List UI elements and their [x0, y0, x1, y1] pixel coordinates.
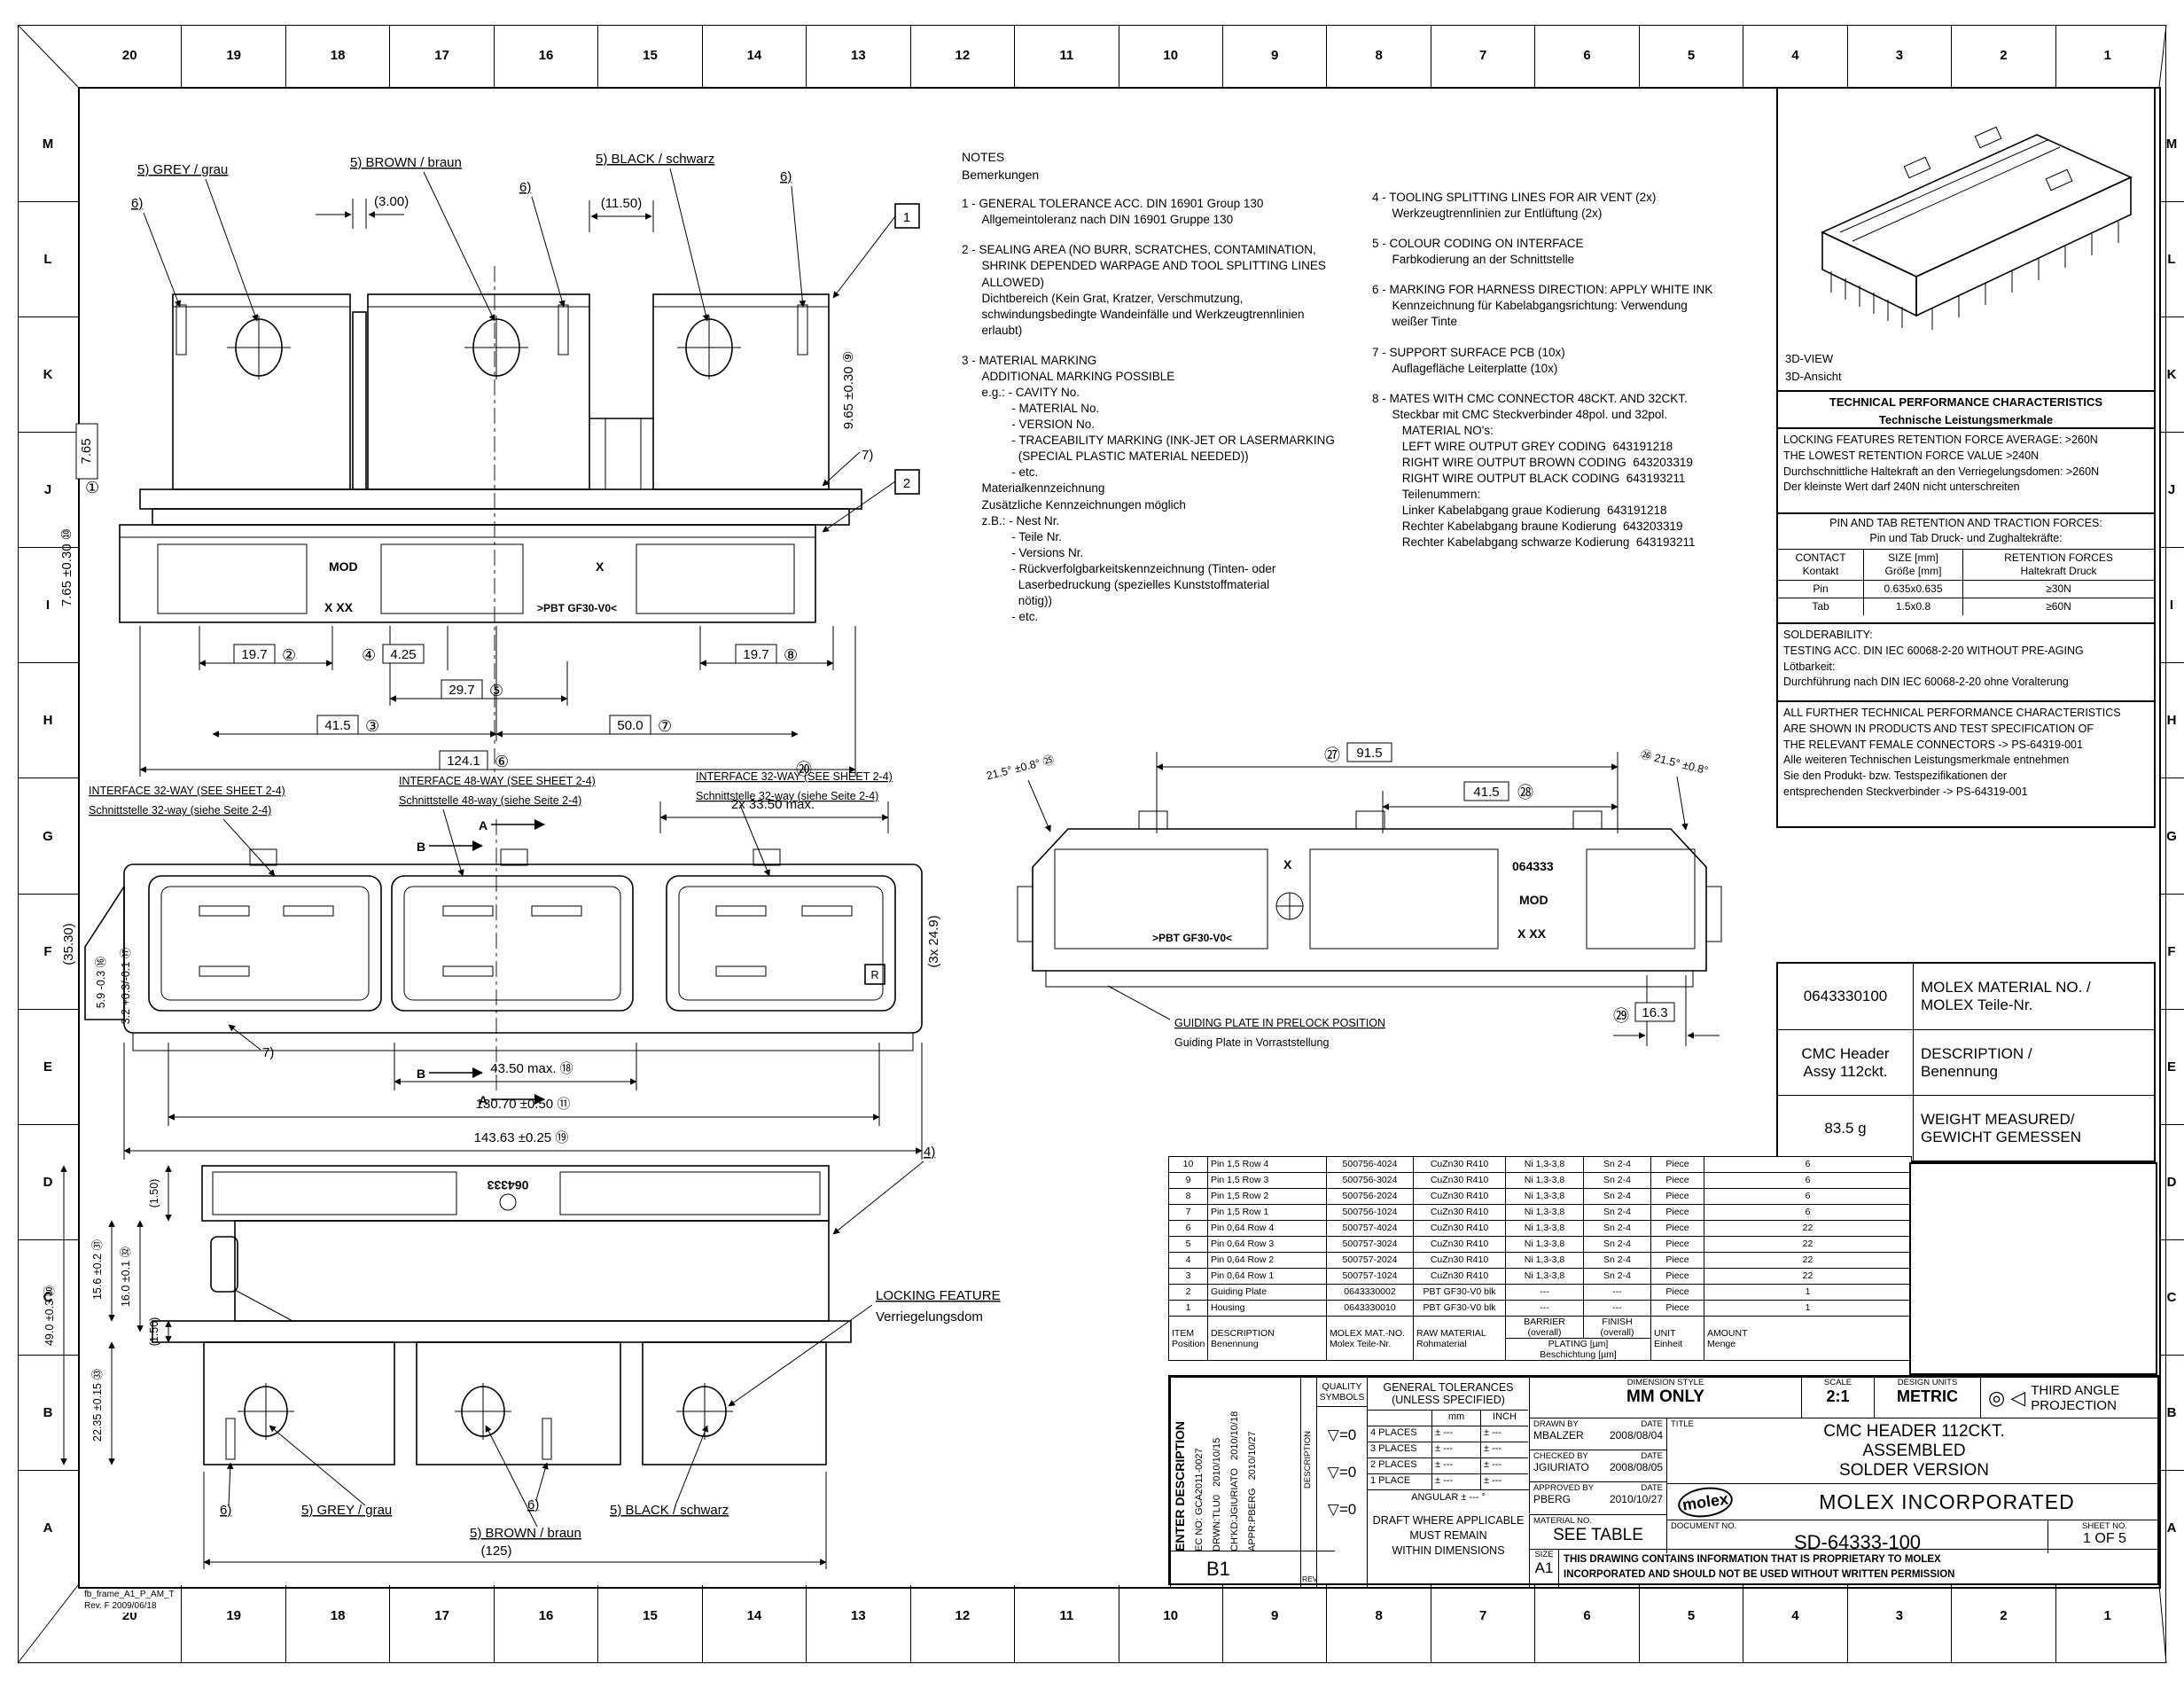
table-row: 3Pin 0,64 Row 1500757-1024CuZn30 R410Ni …	[1169, 1269, 1912, 1285]
frame-column-label: 2	[1951, 25, 2055, 87]
quality-symbol-icon: ▽=0	[1317, 1426, 1367, 1444]
3d-view-label: 3D-VIEW 3D-Ansicht	[1785, 350, 1842, 385]
drawn-by-cell: DRAWN BYDATE MBALZER2008/08/04	[1529, 1418, 1666, 1450]
tol-mm: ± ---	[1431, 1473, 1480, 1489]
tol-inch: ± ---	[1480, 1442, 1528, 1457]
quality-symbols-label: QUALITY SYMBOLS	[1317, 1378, 1367, 1407]
sheet-no-value: 1 OF 5	[2052, 1531, 2157, 1547]
cell: 9	[1169, 1173, 1208, 1189]
col-retention: RETENTION FORCES Haltekraft Druck	[1962, 550, 2154, 580]
header-plating: PLATING [µm] Beschichtung [µm]	[1506, 1339, 1651, 1361]
cell: Housing	[1208, 1301, 1327, 1317]
cell: 1	[1704, 1301, 1912, 1317]
tol-mm: ± ---	[1431, 1442, 1480, 1457]
date-label: DATE	[1641, 1451, 1663, 1461]
notes-column-left: NOTES Bemerkungen 1 - GENERAL TOLERANCE …	[962, 149, 1368, 639]
cell: Ni 1,3-3,8	[1506, 1205, 1584, 1221]
document-no-cell: DOCUMENT NO. SD-64333-100	[1666, 1520, 2047, 1553]
tech-performance-title-de: Technische Leistungsmerkmale	[1778, 411, 2154, 429]
cell: PBT GF30-V0 blk	[1414, 1285, 1506, 1301]
company-cell: molex MOLEX INCORPORATED	[1666, 1483, 2161, 1520]
header-raw-material: RAW MATERIAL Rohmaterial	[1414, 1317, 1506, 1361]
inch-header: INCH	[1480, 1410, 1528, 1426]
cell: PBT GF30-V0 blk	[1414, 1301, 1506, 1317]
cell: Pin 1,5 Row 2	[1208, 1189, 1327, 1205]
tol-mm: ± ---	[1431, 1426, 1480, 1442]
header-description: DESCRIPTION Benennung	[1208, 1317, 1327, 1361]
locking-force-box: LOCKING FEATURES RETENTION FORCE AVERAGE…	[1776, 427, 2156, 514]
design-units-value: METRIC	[1875, 1387, 1980, 1406]
dimension-style-cell: DIMENSION STYLE MM ONLY	[1529, 1377, 1801, 1418]
note-1: 1 - GENERAL TOLERANCE ACC. DIN 16901 Gro…	[962, 196, 1368, 228]
frame-row-label: G	[18, 778, 78, 893]
cell: 1	[1169, 1301, 1208, 1317]
frame-column-label: 6	[1534, 25, 1638, 87]
page-title: CMC HEADER 112CKT. ASSEMBLED SOLDER VERS…	[1667, 1422, 2161, 1481]
checked-by-label: CHECKED BY	[1533, 1451, 1588, 1461]
frame-row-label: D	[2159, 1124, 2184, 1239]
cell: 6	[1169, 1221, 1208, 1237]
cell: Piece	[1651, 1253, 1704, 1269]
notes-column-right: 4 - TOOLING SPLITTING LINES FOR AIR VENT…	[1372, 190, 1773, 565]
frame-row-label: E	[18, 1009, 78, 1124]
header-finish: FINISH (overall)	[1584, 1317, 1651, 1339]
frame-row-label: K	[18, 316, 78, 432]
cell: 22	[1704, 1269, 1912, 1285]
pin-tab-forces-box: PIN AND TAB RETENTION AND TRACTION FORCE…	[1776, 512, 2156, 624]
cell: Ni 1,3-3,8	[1506, 1189, 1584, 1205]
cell: 4	[1169, 1253, 1208, 1269]
projection-label: THIRD ANGLE PROJECTION	[2031, 1383, 2119, 1413]
dimension-style-value: MM ONLY	[1530, 1387, 1801, 1407]
material-summary-table: 0643330100 MOLEX MATERIAL NO. / MOLEX Te…	[1776, 962, 2156, 1162]
frame-row-labels-left: MLKJIHGFEDCBA	[18, 87, 78, 1585]
frame-row-label: M	[18, 87, 78, 201]
frame-row-label: J	[18, 432, 78, 547]
note-3: 3 - MATERIAL MARKING ADDITIONAL MARKING …	[962, 353, 1368, 625]
cell: 7	[1169, 1205, 1208, 1221]
cell: 10	[1169, 1157, 1208, 1173]
frame-row-label: D	[18, 1124, 78, 1239]
cell: CuZn30 R410	[1414, 1157, 1506, 1173]
checked-date: 2008/08/05	[1610, 1461, 1663, 1473]
design-units-cell: DESIGN UNITS METRIC	[1874, 1377, 1980, 1418]
frame-id-text: fb_frame_A1_P_AM_T	[84, 1590, 175, 1599]
tol-inch: ± ---	[1480, 1457, 1528, 1473]
cell: Pin 0,64 Row 3	[1208, 1237, 1327, 1253]
frame-row-label: C	[2159, 1239, 2184, 1355]
header-amount: AMOUNT Menge	[1704, 1317, 1912, 1361]
table-row: 10Pin 1,5 Row 4500756-4024CuZn30 R410Ni …	[1169, 1157, 1912, 1173]
cell: 500757-2024	[1327, 1253, 1414, 1269]
header-molex-mat-no: MOLEX MAT.-NO. Molex Teile-Nr.	[1327, 1317, 1414, 1361]
frame-column-label: 1	[2055, 1585, 2159, 1663]
frame-row-label: L	[18, 201, 78, 316]
frame-row-label: B	[18, 1355, 78, 1470]
description-label: DESCRIPTION / Benennung	[1913, 1029, 2154, 1095]
cell: 3	[1169, 1269, 1208, 1285]
rev-label: REV	[1302, 1575, 1317, 1583]
quality-symbol-icon: ▽=0	[1317, 1464, 1367, 1481]
cell: Pin 1,5 Row 1	[1208, 1205, 1327, 1221]
frame-column-label: 19	[181, 25, 285, 87]
third-angle-projection-icon: ◎ ◁	[1988, 1387, 2025, 1410]
engineering-drawing-sheet: { "frame": { "cols": ["20","19","18","17…	[0, 0, 2184, 1688]
frame-column-label: 10	[1119, 1585, 1222, 1663]
cell: 500756-4024	[1327, 1157, 1414, 1173]
date-label: DATE	[1641, 1483, 1663, 1493]
frame-column-label: 15	[597, 25, 701, 87]
tech-performance-title: TECHNICAL PERFORMANCE CHARACTERISTICS	[1778, 394, 2154, 411]
cell: 500757-4024	[1327, 1221, 1414, 1237]
cell: CuZn30 R410	[1414, 1221, 1506, 1237]
description-label: DESCRIPTION	[1303, 1431, 1313, 1489]
cell: Sn 2-4	[1584, 1157, 1651, 1173]
document-no-label: DOCUMENT NO.	[1671, 1521, 2044, 1531]
title-block: ENTER DESCRIPTIONEC NO: GCA2011-0027DRWN…	[1168, 1375, 2159, 1585]
frame-row-labels-right: MLKJIHGFEDCBA	[2159, 87, 2184, 1585]
frame-column-label: 18	[285, 1585, 389, 1663]
cell: Piece	[1651, 1237, 1704, 1253]
frame-column-label: 8	[1326, 1585, 1430, 1663]
cell: 6	[1704, 1157, 1912, 1173]
tol-row-label: 3 PLACES	[1368, 1442, 1431, 1457]
cell: Sn 2-4	[1584, 1189, 1651, 1205]
cell: ≥30N	[1962, 580, 2154, 598]
cell: Guiding Plate	[1208, 1285, 1327, 1301]
document-no-value: SD-64333-100	[1671, 1531, 2044, 1554]
frame-column-label: 1	[2055, 25, 2159, 87]
frame-row-label: C	[18, 1239, 78, 1355]
proprietary-disclaimer: THIS DRAWING CONTAINS INFORMATION THAT I…	[1558, 1549, 2161, 1587]
cell: Piece	[1651, 1269, 1704, 1285]
frame-row-label: A	[2159, 1470, 2184, 1585]
solderability-text: SOLDERABILITY: TESTING ACC. DIN IEC 6006…	[1778, 624, 2154, 694]
frame-row-label: G	[2159, 778, 2184, 893]
drawn-by-value: MBALZER	[1533, 1429, 1584, 1442]
cell: Ni 1,3-3,8	[1506, 1221, 1584, 1237]
cell: 0643330002	[1327, 1285, 1414, 1301]
table-row: 4Pin 0,64 Row 2500757-2024CuZn30 R410Ni …	[1169, 1253, 1912, 1269]
cell: Piece	[1651, 1221, 1704, 1237]
quality-symbols-box: QUALITY SYMBOLS ▽=0▽=0▽=0	[1316, 1377, 1367, 1587]
tech-performance-header: TECHNICAL PERFORMANCE CHARACTERISTICS Te…	[1776, 390, 2156, 429]
table-row: 6Pin 0,64 Row 4500757-4024CuZn30 R410Ni …	[1169, 1221, 1912, 1237]
frame-column-label: 9	[1222, 25, 1326, 87]
bom-spare-box	[1909, 1162, 2157, 1375]
frame-row-label: F	[2159, 894, 2184, 1009]
cell: ≥60N	[1962, 598, 2154, 615]
cell: 500756-3024	[1327, 1173, 1414, 1189]
date-label: DATE	[1641, 1419, 1663, 1429]
bom-header-row: ITEM Position DESCRIPTION Benennung MOLE…	[1169, 1317, 1912, 1339]
frame-row-label: I	[18, 547, 78, 662]
further-characteristics-box: ALL FURTHER TECHNICAL PERFORMANCE CHARAC…	[1776, 700, 2156, 828]
frame-column-label: 14	[702, 1585, 806, 1663]
cell: 8	[1169, 1189, 1208, 1205]
cell: 22	[1704, 1221, 1912, 1237]
frame-row-label: H	[2159, 662, 2184, 778]
cell: Sn 2-4	[1584, 1269, 1651, 1285]
frame-column-label: 7	[1431, 25, 1534, 87]
cell: Pin	[1778, 580, 1863, 598]
cell: 500757-3024	[1327, 1237, 1414, 1253]
frame-column-label: 3	[1847, 1585, 1951, 1663]
further-characteristics-text: ALL FURTHER TECHNICAL PERFORMANCE CHARAC…	[1778, 702, 2154, 804]
scale-cell: SCALE 2:1	[1801, 1377, 1874, 1418]
cell: 1	[1704, 1285, 1912, 1301]
cell: ---	[1584, 1285, 1651, 1301]
frame-column-label: 16	[494, 1585, 597, 1663]
draft-note: DRAFT WHERE APPLICABLE MUST REMAIN WITHI…	[1368, 1513, 1529, 1559]
cell: 0643330010	[1327, 1301, 1414, 1317]
frame-column-label: 13	[806, 25, 909, 87]
design-units-label: DESIGN UNITS	[1875, 1378, 1980, 1387]
frame-column-label: 5	[1639, 25, 1743, 87]
frame-column-label: 7	[1431, 1585, 1534, 1663]
general-tolerances-title: GENERAL TOLERANCES (UNLESS SPECIFIED)	[1368, 1378, 1529, 1410]
frame-row-label: L	[2159, 201, 2184, 316]
table-row: 8Pin 1,5 Row 2500756-2024CuZn30 R410Ni 1…	[1169, 1189, 1912, 1205]
mm-header: mm	[1431, 1410, 1480, 1426]
frame-column-labels-top: 2019181716151413121110987654321	[78, 25, 2159, 87]
frame-column-label: 11	[1014, 1585, 1118, 1663]
material-number-label: MOLEX MATERIAL NO. / MOLEX Teile-Nr.	[1913, 964, 2154, 1029]
bill-of-materials: 10Pin 1,5 Row 4500756-4024CuZn30 R410Ni …	[1168, 1156, 1912, 1361]
table-row: 2Guiding Plate0643330002PBT GF30-V0 blk-…	[1169, 1285, 1912, 1301]
note-4: 4 - TOOLING SPLITTING LINES FOR AIR VENT…	[1372, 190, 1773, 222]
cell: CuZn30 R410	[1414, 1253, 1506, 1269]
projection-cell: ◎ ◁ THIRD ANGLE PROJECTION	[1980, 1377, 2161, 1418]
col-contact: CONTACT Kontakt	[1778, 550, 1863, 580]
approved-by-cell: APPROVED BYDATE PBERG2010/10/27	[1529, 1481, 1666, 1513]
drawn-date: 2008/08/04	[1610, 1429, 1663, 1442]
frame-row-label: A	[18, 1470, 78, 1585]
frame-column-label: 10	[1119, 25, 1222, 87]
revision-entry: CH'KD:JGIURIATO 2010/10/18	[1229, 1381, 1240, 1551]
solderability-box: SOLDERABILITY: TESTING ACC. DIN IEC 6006…	[1776, 622, 2156, 702]
frame-column-label: 16	[494, 25, 597, 87]
frame-column-label: 15	[597, 1585, 701, 1663]
frame-column-label: 17	[389, 25, 493, 87]
frame-column-label: 2	[1951, 1585, 2055, 1663]
cell: 5	[1169, 1237, 1208, 1253]
note-7: 7 - SUPPORT SURFACE PCB (10x) Auflageflä…	[1372, 345, 1773, 377]
cell: 2	[1169, 1285, 1208, 1301]
cell: ---	[1506, 1285, 1584, 1301]
cell: Pin 0,64 Row 4	[1208, 1221, 1327, 1237]
title-cell: TITLE CMC HEADER 112CKT. ASSEMBLED SOLDE…	[1666, 1418, 2161, 1483]
tol-row-label: 1 PLACE	[1368, 1473, 1431, 1489]
revision-entry: ENTER DESCRIPTION	[1173, 1381, 1187, 1551]
cell: Piece	[1651, 1205, 1704, 1221]
table-row: 5Pin 0,64 Row 3500757-3024CuZn30 R410Ni …	[1169, 1237, 1912, 1253]
weight-label: WEIGHT MEASURED/ GEWICHT GEMESSEN	[1913, 1095, 2154, 1160]
title-label: TITLE	[1671, 1419, 1694, 1429]
cell: Pin 1,5 Row 3	[1208, 1173, 1327, 1189]
molex-logo: molex	[1676, 1483, 1735, 1520]
pin-tab-title: PIN AND TAB RETENTION AND TRACTION FORCE…	[1778, 514, 2154, 549]
cell: Piece	[1651, 1285, 1704, 1301]
material-no-value: SEE TABLE	[1533, 1526, 1663, 1545]
header-barrier: BARRIER (overall)	[1506, 1317, 1584, 1339]
cell: 6	[1704, 1189, 1912, 1205]
col-size: SIZE [mm] Größe [mm]	[1863, 550, 1962, 580]
cell: 500756-2024	[1327, 1189, 1414, 1205]
size-cell: SIZE A1	[1529, 1549, 1558, 1587]
table-row: 9Pin 1,5 Row 3500756-3024CuZn30 R410Ni 1…	[1169, 1173, 1912, 1189]
cell: Piece	[1651, 1173, 1704, 1189]
revision-entry: EC NO: GCA2011-0027	[1194, 1381, 1205, 1551]
revision-entries: ENTER DESCRIPTIONEC NO: GCA2011-0027DRWN…	[1171, 1378, 1300, 1555]
frame-column-label: 11	[1014, 25, 1118, 87]
approved-by-value: PBERG	[1533, 1493, 1571, 1505]
company-name: MOLEX INCORPORATED	[1733, 1490, 2161, 1514]
frame-row-label: J	[2159, 432, 2184, 547]
frame-row-label: H	[18, 662, 78, 778]
frame-row-label: F	[18, 894, 78, 1009]
frame-column-label: 9	[1222, 1585, 1326, 1663]
frame-column-label: 13	[806, 1585, 909, 1663]
dimension-style-label: DIMENSION STYLE	[1530, 1378, 1801, 1387]
cell: Piece	[1651, 1301, 1704, 1317]
frame-column-label: 6	[1534, 1585, 1638, 1663]
cell: 22	[1704, 1237, 1912, 1253]
cell: CuZn30 R410	[1414, 1189, 1506, 1205]
cell: Sn 2-4	[1584, 1173, 1651, 1189]
scale-label: SCALE	[1802, 1378, 1874, 1387]
tol-inch: ± ---	[1480, 1473, 1528, 1489]
frame-column-label: 17	[389, 1585, 493, 1663]
material-no-cell: MATERIAL NO. SEE TABLE	[1529, 1514, 1666, 1549]
tol-row-label: 4 PLACES	[1368, 1426, 1431, 1442]
scale-value: 2:1	[1802, 1387, 1874, 1406]
tolerances-table: mm INCH 4 PLACES ± --- ± --- 3 PLACES ± …	[1368, 1410, 1529, 1489]
cell: 22	[1704, 1253, 1912, 1269]
cell: Ni 1,3-3,8	[1506, 1237, 1584, 1253]
frame-column-label: 12	[910, 1585, 1014, 1663]
frame-column-label: 12	[910, 25, 1014, 87]
general-tolerances-box: GENERAL TOLERANCES (UNLESS SPECIFIED) mm…	[1367, 1377, 1529, 1587]
frame-row-label: K	[2159, 316, 2184, 432]
material-no-label: MATERIAL NO.	[1533, 1516, 1663, 1526]
blank	[1368, 1410, 1431, 1426]
cell: Pin 0,64 Row 2	[1208, 1253, 1327, 1269]
cell: Ni 1,3-3,8	[1506, 1253, 1584, 1269]
frame-column-label: 18	[285, 25, 389, 87]
header-item: ITEM Position	[1169, 1317, 1208, 1361]
frame-row-label: B	[2159, 1355, 2184, 1470]
locking-force-text: LOCKING FEATURES RETENTION FORCE AVERAGE…	[1778, 429, 2154, 499]
cell: CuZn30 R410	[1414, 1205, 1506, 1221]
sheet-no-cell: SHEET NO. 1 OF 5	[2047, 1520, 2161, 1553]
drawn-by-label: DRAWN BY	[1533, 1419, 1579, 1429]
frame-row-label: E	[2159, 1009, 2184, 1124]
frame-row-label: I	[2159, 547, 2184, 662]
revision-description-column: DESCRIPTION REV	[1300, 1377, 1316, 1587]
pin-tab-table: CONTACT Kontakt SIZE [mm] Größe [mm] RET…	[1778, 549, 2154, 615]
3d-view-box: 3D-VIEW 3D-Ansicht	[1776, 87, 2156, 392]
note-5: 5 - COLOUR CODING ON INTERFACE Farbkodie…	[1372, 236, 1773, 268]
table-row: 7Pin 1,5 Row 1500756-1024CuZn30 R410Ni 1…	[1169, 1205, 1912, 1221]
cell: 500756-1024	[1327, 1205, 1414, 1221]
revision-entry: DRWN:TLU0 2010/10/15	[1212, 1381, 1222, 1551]
cell: 500757-1024	[1327, 1269, 1414, 1285]
frame-column-label: 5	[1639, 1585, 1743, 1663]
note-8: 8 - MATES WITH CMC CONNECTOR 48CKT. AND …	[1372, 391, 1773, 551]
frame-column-label: 20	[78, 25, 181, 87]
cell: CuZn30 R410	[1414, 1173, 1506, 1189]
cell: Sn 2-4	[1584, 1205, 1651, 1221]
quality-symbol-icon: ▽=0	[1317, 1501, 1367, 1519]
approved-by-label: APPROVED BY	[1533, 1483, 1594, 1493]
checked-by-cell: CHECKED BYDATE JGIURIATO2008/08/05	[1529, 1450, 1666, 1481]
frame-column-labels-bottom: 2019181716151413121110987654321	[78, 1585, 2159, 1663]
cell: Ni 1,3-3,8	[1506, 1269, 1584, 1285]
frame-column-label: 3	[1847, 25, 1951, 87]
tol-inch: ± ---	[1480, 1426, 1528, 1442]
material-number: 0643330100	[1778, 964, 1913, 1029]
cell: Ni 1,3-3,8	[1506, 1157, 1584, 1173]
cell: CuZn30 R410	[1414, 1237, 1506, 1253]
size-value: A1	[1530, 1559, 1558, 1577]
cell: 6	[1704, 1205, 1912, 1221]
cell: Sn 2-4	[1584, 1221, 1651, 1237]
cell: 6	[1704, 1173, 1912, 1189]
cell: CuZn30 R410	[1414, 1269, 1506, 1285]
cell: ---	[1584, 1301, 1651, 1317]
note-6: 6 - MARKING FOR HARNESS DIRECTION: APPLY…	[1372, 282, 1773, 330]
description-value: CMC Header Assy 112ckt.	[1778, 1029, 1913, 1095]
frame-column-label: 14	[702, 25, 806, 87]
weight-value: 83.5 g	[1778, 1095, 1913, 1160]
cell: 1.5x0.8	[1863, 598, 1962, 615]
revision-entry: APPR:PBERG 2010/10/27	[1247, 1381, 1258, 1551]
cell: Piece	[1651, 1189, 1704, 1205]
checked-by-value: JGIURIATO	[1533, 1461, 1589, 1473]
cell: Tab	[1778, 598, 1863, 615]
revision-strip: ENTER DESCRIPTIONEC NO: GCA2011-0027DRWN…	[1170, 1377, 1300, 1587]
frame-column-label: 19	[181, 1585, 285, 1663]
cell: 0.635x0.635	[1863, 580, 1962, 598]
quality-symbols: ▽=0▽=0▽=0	[1317, 1426, 1367, 1519]
frame-format-id: fb_frame_A1_P_AM_TRev. F 2009/06/18	[82, 1589, 177, 1613]
tol-row-label: 2 PLACES	[1368, 1457, 1431, 1473]
frame-column-label: 4	[1743, 1585, 1846, 1663]
size-label: SIZE	[1530, 1550, 1558, 1559]
table-row: 1Housing0643330010PBT GF30-V0 blk------P…	[1169, 1301, 1912, 1317]
cell: Pin 0,64 Row 1	[1208, 1269, 1327, 1285]
approved-date: 2010/10/27	[1610, 1493, 1663, 1505]
frame-rev-text: Rev. F 2009/06/18	[84, 1601, 157, 1611]
cell: Piece	[1651, 1157, 1704, 1173]
notes-title: NOTES Bemerkungen	[962, 149, 1368, 184]
cell: Sn 2-4	[1584, 1237, 1651, 1253]
cell: Ni 1,3-3,8	[1506, 1173, 1584, 1189]
cell: Sn 2-4	[1584, 1253, 1651, 1269]
frame-row-label: M	[2159, 87, 2184, 201]
frame-column-label: 4	[1743, 25, 1846, 87]
tol-mm: ± ---	[1431, 1457, 1480, 1473]
note-2: 2 - SEALING AREA (NO BURR, SCRATCHES, CO…	[962, 242, 1368, 338]
cell: ---	[1506, 1301, 1584, 1317]
header-unit: UNIT Einheit	[1651, 1317, 1704, 1361]
sheet-no-label: SHEET NO.	[2052, 1521, 2157, 1531]
cell: Pin 1,5 Row 4	[1208, 1157, 1327, 1173]
angular-tolerance: ANGULAR ± --- °	[1368, 1489, 1529, 1504]
frame-column-label: 8	[1326, 25, 1430, 87]
